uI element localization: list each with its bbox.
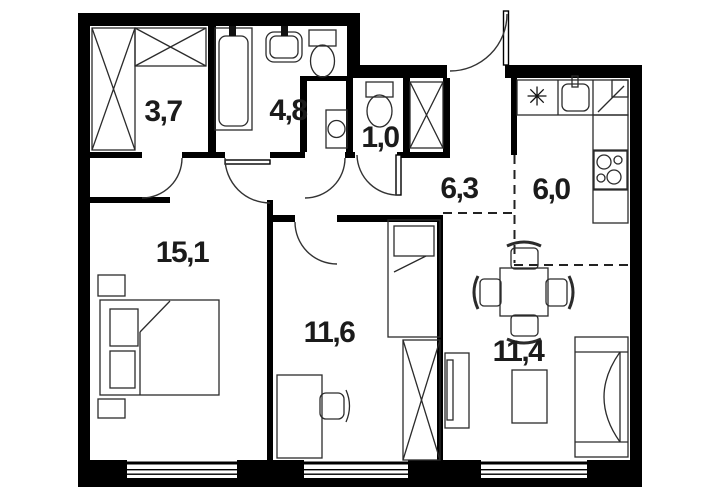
window-band <box>127 462 587 475</box>
window-living-room <box>481 462 587 475</box>
wardrobe-closets <box>92 28 206 150</box>
window-bedroom-2 <box>304 462 408 475</box>
room-label-bedroom: 15,1 <box>156 236 208 270</box>
nightstand-top <box>98 275 125 296</box>
bedroom-furniture <box>98 275 219 418</box>
single-bed-icon <box>388 220 440 337</box>
sofa-icon <box>575 337 628 457</box>
chair-left-icon <box>474 276 501 309</box>
room-label-kitchen: 6,0 <box>532 173 569 207</box>
floor-plan: 3,7 4,8 1,0 6,3 6,0 15,1 11,6 11,4 ✳ <box>0 0 725 500</box>
closet-tall-icon <box>92 28 135 150</box>
washing-machine-icon <box>326 110 347 148</box>
doors <box>142 11 509 264</box>
closet-top-icon <box>135 28 206 66</box>
bathtub-icon <box>215 26 252 130</box>
kitchen-marker-icon: ✳ <box>526 82 548 113</box>
kitchen-sink-icon <box>562 76 589 111</box>
bedroom-2-door <box>295 222 337 264</box>
room-label-living-room: 11,4 <box>493 335 544 369</box>
tv-console-icon <box>445 353 469 428</box>
dining-chairs <box>474 242 573 343</box>
hall-closet-icon <box>410 82 443 148</box>
room-label-wc: 1,0 <box>361 121 398 155</box>
room-label-bedroom-2: 11,6 <box>304 316 355 350</box>
floor-plan-drawing <box>0 0 725 500</box>
dining-table-icon <box>500 268 548 316</box>
toilet-icon <box>309 30 336 77</box>
sink-icon <box>266 26 302 62</box>
window-bedroom <box>127 462 237 475</box>
laundry-niche-door <box>305 158 345 198</box>
bathroom-fixtures <box>215 26 347 148</box>
bathroom-door <box>225 158 270 203</box>
stove-icon <box>594 151 627 189</box>
desk-icon <box>277 375 322 458</box>
room-label-bathroom: 4,8 <box>269 94 306 128</box>
room-label-hallway: 6,3 <box>440 172 477 206</box>
entrance-door <box>450 11 509 71</box>
bedroom-2-furniture <box>277 220 440 460</box>
wardrobe-2-icon <box>403 340 440 460</box>
wardrobe-door <box>142 158 182 198</box>
room-label-wardrobe: 3,7 <box>144 95 181 129</box>
coffee-table-icon <box>512 370 547 423</box>
nightstand-bottom <box>98 399 125 418</box>
chair-right-icon <box>546 276 573 309</box>
kitchen-counter-side <box>593 115 628 223</box>
desk-chair-icon <box>320 390 350 422</box>
wc-door <box>357 155 401 195</box>
double-bed-icon <box>100 300 219 395</box>
